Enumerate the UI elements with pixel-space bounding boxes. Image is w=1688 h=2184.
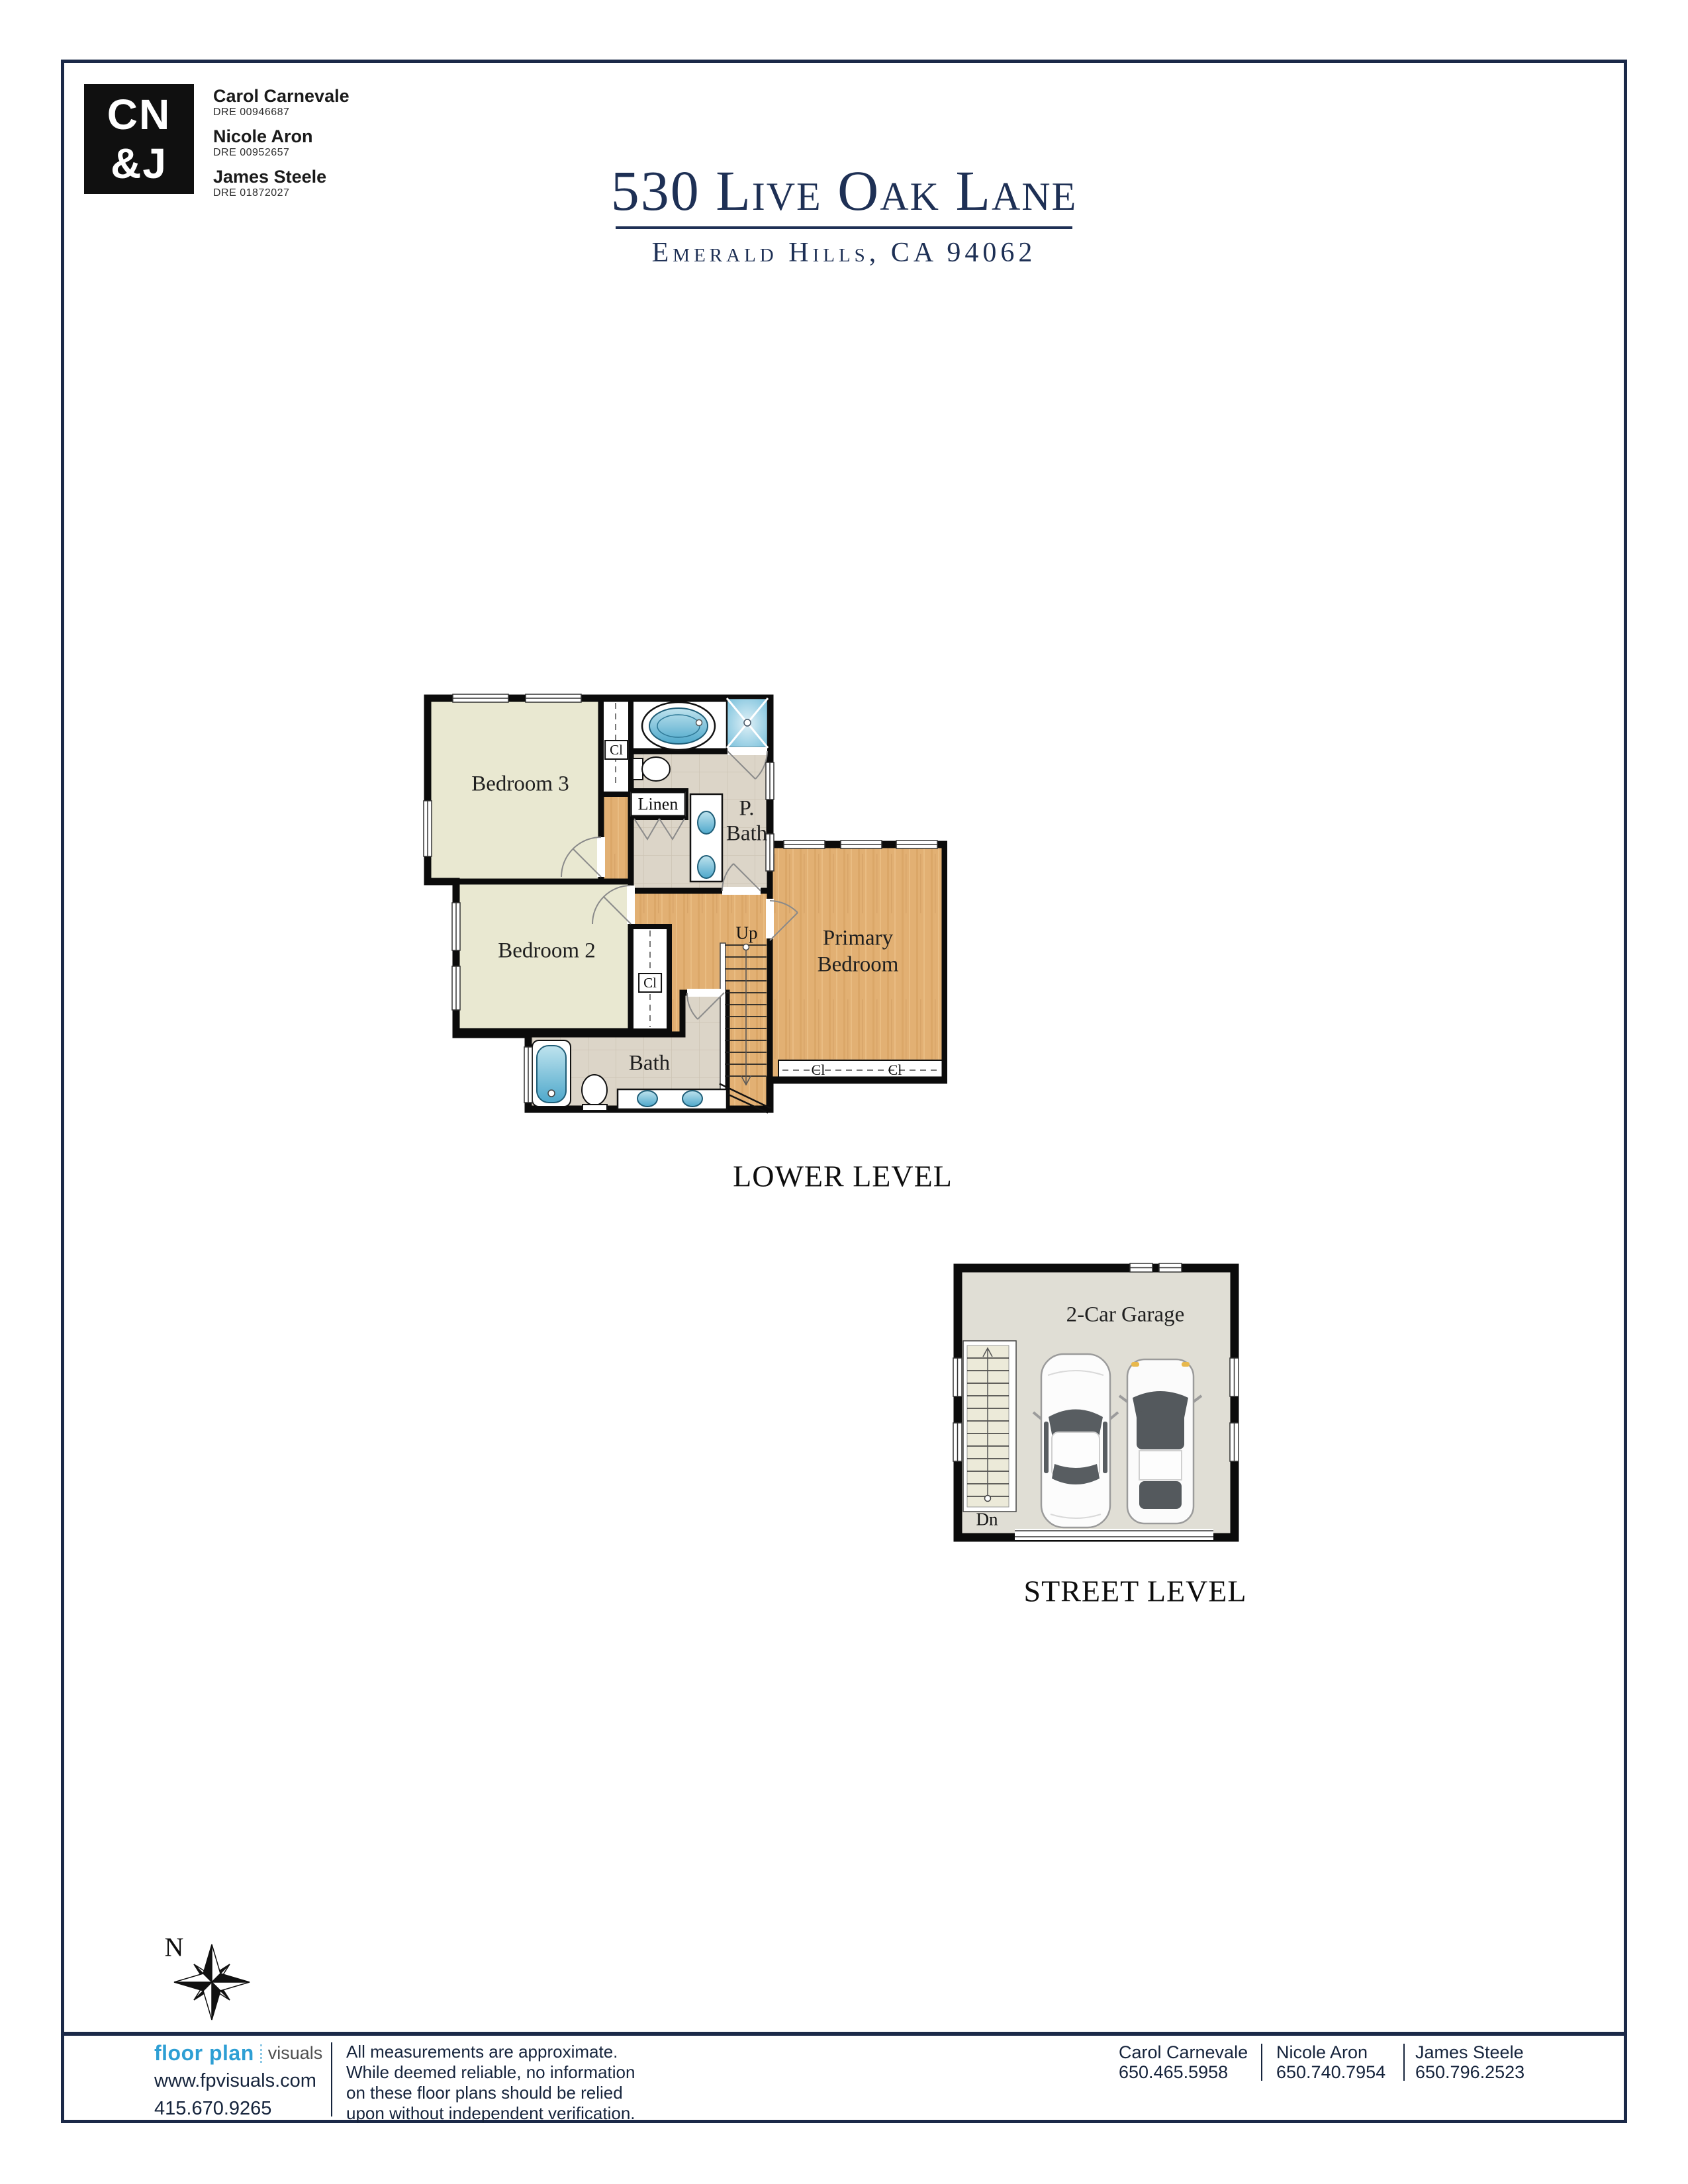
agent-name: Carol Carnevale bbox=[213, 86, 350, 106]
disclaimer-line: on these floor plans should be relied bbox=[346, 2083, 635, 2103]
label-bedroom3: Bedroom 3 bbox=[471, 772, 569, 797]
brand-divider-icon bbox=[260, 2044, 262, 2063]
lower-level-drawing bbox=[421, 688, 947, 1115]
label-primary-bath-1: P. bbox=[739, 797, 755, 821]
label-linen: Linen bbox=[631, 792, 686, 817]
footer-agent-name: Carol Carnevale bbox=[1119, 2042, 1248, 2062]
logo-line-1: CN bbox=[84, 90, 194, 139]
label-bedroom2: Bedroom 2 bbox=[498, 939, 596, 964]
brand-phone: 415.670.9265 bbox=[154, 2098, 271, 2120]
label-closet-bedroom2: Cl bbox=[638, 973, 662, 993]
disclaimer-text: All measurements are approximate. While … bbox=[346, 2042, 635, 2124]
footer-agent-james: James Steele 650.796.2523 bbox=[1415, 2042, 1524, 2082]
disclaimer-line: While deemed reliable, no information bbox=[346, 2062, 635, 2083]
lower-level-title: LOWER LEVEL bbox=[733, 1159, 953, 1194]
label-bath: Bath bbox=[629, 1052, 670, 1076]
footer-top-rule bbox=[61, 2032, 1627, 2036]
label-closet-primary-right: Cl bbox=[888, 1062, 902, 1079]
toilet-primary-bowl bbox=[642, 757, 670, 781]
footer-agent-name: Nicole Aron bbox=[1276, 2042, 1385, 2062]
label-primary-bath-2: Bath bbox=[726, 822, 767, 846]
floorplan-visuals-logo: floor plan visuals bbox=[154, 2041, 322, 2066]
sink bbox=[682, 1091, 702, 1107]
brand-bold: floor plan bbox=[154, 2041, 254, 2066]
title-underline bbox=[616, 226, 1072, 229]
footer-agent-divider bbox=[1261, 2044, 1262, 2081]
brand-light: visuals bbox=[268, 2043, 323, 2064]
stairs-down bbox=[963, 1341, 1016, 1512]
sink bbox=[637, 1091, 657, 1107]
sink bbox=[698, 811, 715, 834]
disclaimer-line: upon without independent verification. bbox=[346, 2103, 635, 2124]
street-level-title: STREET LEVEL bbox=[1024, 1574, 1247, 1609]
vanity-hall bbox=[618, 1089, 727, 1109]
garage-door bbox=[1015, 1529, 1213, 1540]
brand-website: www.fpvisuals.com bbox=[154, 2070, 316, 2092]
footer-agent-phone: 650.465.5958 bbox=[1119, 2062, 1248, 2082]
footer-agent-name: James Steele bbox=[1415, 2042, 1524, 2062]
footer-divider bbox=[331, 2042, 332, 2116]
label-primary-bedroom-1: Primary bbox=[823, 927, 893, 951]
label-stairs-up: Up bbox=[736, 923, 758, 944]
footer-agent-phone: 650.796.2523 bbox=[1415, 2062, 1524, 2082]
footer-agent-nicole: Nicole Aron 650.740.7954 bbox=[1276, 2042, 1385, 2082]
label-garage: 2-Car Garage bbox=[1066, 1303, 1185, 1328]
car-sedan bbox=[1033, 1354, 1118, 1527]
footer-agent-divider bbox=[1403, 2044, 1405, 2081]
lower-level-plan: Bedroom 3 Bedroom 2 Bath P. Bath Primary… bbox=[421, 688, 947, 1115]
toilet-hall-bowl bbox=[582, 1075, 607, 1105]
property-address-title: 530 Live Oak Lane bbox=[0, 158, 1688, 224]
floor-plan-flyer-page: CN &J Carol Carnevale DRE 00946687 Nicol… bbox=[0, 0, 1688, 2184]
agent-entry: Nicole Aron DRE 00952657 bbox=[213, 126, 350, 159]
footer-agent-carol: Carol Carnevale 650.465.5958 bbox=[1119, 2042, 1248, 2082]
label-primary-bedroom-2: Bedroom bbox=[818, 953, 899, 978]
footer-agent-phone: 650.740.7954 bbox=[1276, 2062, 1385, 2082]
label-closet-bedroom3: Cl bbox=[604, 740, 628, 760]
agent-entry: Carol Carnevale DRE 00946687 bbox=[213, 86, 350, 118]
property-city-subtitle: Emerald Hills, CA 94062 bbox=[0, 237, 1688, 269]
toilet-hall-tank bbox=[583, 1105, 607, 1111]
agent-dre: DRE 00946687 bbox=[213, 106, 350, 118]
label-stairs-down: Dn bbox=[976, 1510, 998, 1530]
sink bbox=[698, 856, 715, 878]
car-suv bbox=[1119, 1359, 1201, 1524]
disclaimer-line: All measurements are approximate. bbox=[346, 2042, 635, 2062]
label-closet-primary-left: Cl bbox=[812, 1062, 825, 1079]
compass-rose-icon bbox=[169, 1939, 255, 2025]
agent-name: Nicole Aron bbox=[213, 126, 350, 146]
street-level-plan: 2-Car Garage Dn bbox=[951, 1261, 1241, 1544]
toilet-primary-tank bbox=[633, 758, 643, 780]
